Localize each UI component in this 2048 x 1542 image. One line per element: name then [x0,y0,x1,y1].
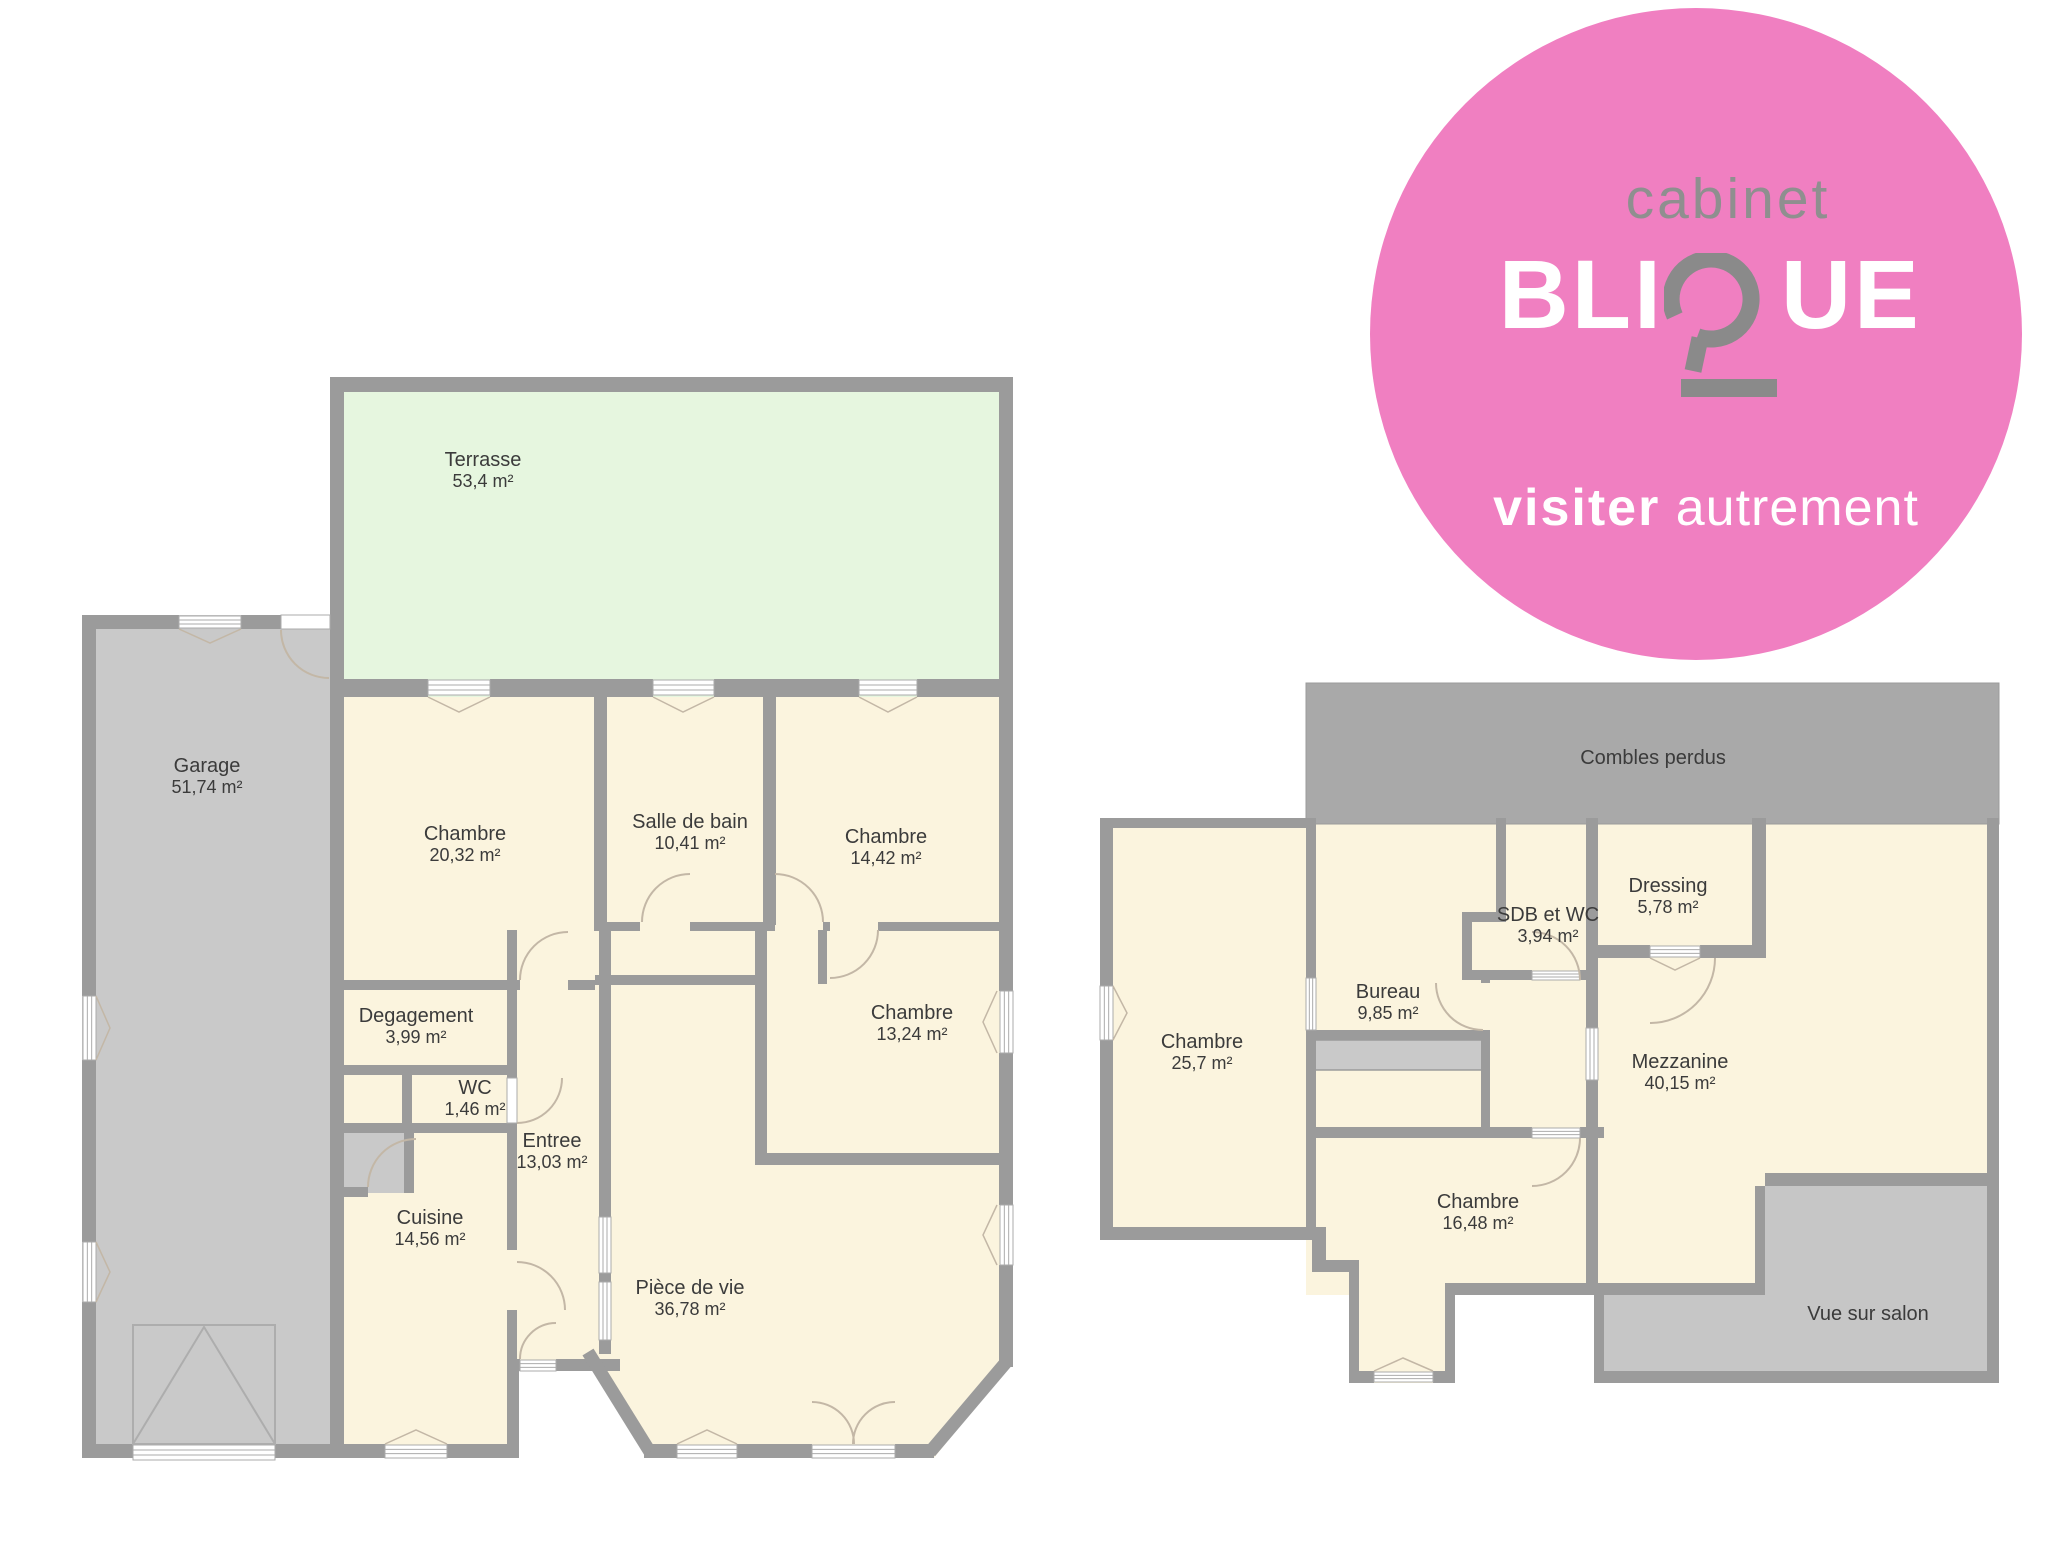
wall-segment [1349,1371,1374,1383]
wall-segment [1481,1030,1490,1130]
wall-segment [275,1444,330,1458]
wall-segment [999,1265,1013,1367]
wall-segment [1462,970,1532,980]
window [599,1217,611,1273]
room-area-chambre-2: 14,42 m² [850,848,921,868]
wall-segment [330,1444,385,1458]
room-area-wc: 1,46 m² [444,1099,505,1119]
wall-segment [330,629,344,1458]
wall-segment [330,377,1013,392]
room-label-wc: WC [458,1077,491,1099]
room-area-salle-de-bain: 10,41 m² [654,833,725,853]
wall-segment [1445,1283,1455,1383]
room-label-piece-de-vie: Pièce de vie [636,1277,745,1299]
wall-segment [823,922,830,931]
wall-segment [1100,818,1312,828]
room-label-entree: Entree [523,1130,582,1152]
wall-segment [1100,1227,1326,1240]
wall-segment [1306,818,1316,978]
room-label-garage: Garage [174,755,241,777]
room-label-vue-sur-salon: Vue sur salon [1807,1303,1929,1325]
room-label-chambre-1: Chambre [424,823,506,845]
wall-segment [1445,1283,1765,1295]
window [1650,946,1700,957]
window [507,1078,517,1123]
wall-segment [755,1153,1013,1165]
wall-segment [818,930,827,984]
wall-segment [507,930,517,1078]
wall-segment [82,1302,96,1458]
window [812,1445,895,1458]
window [1532,971,1580,980]
wall-segment [507,1310,517,1444]
room-label-mezzanine: Mezzanine [1632,1051,1729,1073]
wall-segment [404,1133,414,1193]
wall-segment [1586,1080,1598,1295]
house-fill [330,1353,519,1458]
room-area-cuisine: 14,56 m² [394,1229,465,1249]
wall-segment [1594,1295,1604,1383]
room-label-bureau: Bureau [1356,981,1421,1003]
logo-q-icon [1664,253,1781,388]
window [653,680,714,695]
window [1100,986,1113,1040]
wall-segment [402,1075,412,1123]
wall-segment [595,975,755,985]
wall-segment [490,679,653,697]
wall-segment [599,930,611,1217]
room-label-combles: Combles perdus [1580,747,1726,769]
room-label-chambre-3: Chambre [871,1002,953,1024]
logo-tagline: visiter autrement [1370,478,2022,538]
wall-segment [1100,1040,1113,1240]
wall-segment [999,1053,1013,1205]
room-label-dressing: Dressing [1629,875,1708,897]
wall-segment [1100,824,1113,986]
logo-tagline-bold: visiter [1493,479,1660,537]
wall-segment [330,1123,517,1133]
floorplan-page: Terrasse 53,4 m² Garage 51,74 m² Chambre… [0,0,2048,1542]
wall-segment [917,679,1013,697]
house-fill [1349,1260,1455,1383]
room-label-chambre-2: Chambre [845,826,927,848]
room-area-chambre-5: 16,48 m² [1442,1213,1513,1233]
room-area-sdb-wc: 3,94 m² [1517,926,1578,946]
room-area-entree: 13,03 m² [516,1152,587,1172]
wall-segment [330,1187,368,1197]
window [428,680,490,695]
room-area-degagement: 3,99 m² [385,1027,446,1047]
room-area-piece-de-vie: 36,78 m² [654,1299,725,1319]
wall-segment [82,1060,96,1242]
wall-segment [82,615,96,996]
wall-segment [690,922,775,931]
room-area-garage: 51,74 m² [171,777,242,797]
wall-segment [594,697,607,930]
window [281,615,330,629]
wall-segment [568,980,595,990]
window [520,1360,556,1371]
wall-segment [737,1444,812,1458]
wall-segment [1598,945,1650,958]
wall-segment [330,679,428,697]
window [1000,991,1013,1053]
wall-segment [878,922,1013,931]
logo-brand-start: BLI [1370,246,1664,343]
room-label-salle-de-bain: Salle de bain [632,811,748,833]
wall-segment [1765,1173,1999,1186]
wall-segment [330,1065,517,1075]
wall-segment [1349,1260,1359,1383]
wall-segment [755,930,767,1160]
entry-recess [519,1371,592,1458]
vue-sur-salon-fill [1594,1295,1765,1383]
window [677,1445,737,1458]
window [1374,1372,1433,1382]
room-area-chambre-1: 20,32 m² [429,845,500,865]
wall-segment [599,1273,611,1282]
agency-logo: cabinet BLI UE visiter autrement [1370,8,2022,660]
room-area-chambre-4: 25,7 m² [1171,1053,1232,1073]
wall-segment [330,980,520,990]
house-fill [1598,1186,1765,1295]
room-label-cuisine: Cuisine [397,1207,464,1229]
window [1000,1205,1013,1265]
wall-segment [507,1123,517,1250]
house-fill [1100,818,1312,1240]
wall-segment [999,697,1013,991]
window [599,1282,611,1340]
room-area-chambre-3: 13,24 m² [876,1024,947,1044]
wall-segment [599,1340,611,1354]
window [859,680,917,695]
wall-segment [82,1444,133,1458]
room-area-mezzanine: 40,15 m² [1644,1073,1715,1093]
room-area-bureau: 9,85 m² [1357,1003,1418,1023]
terrace-fill [330,377,1013,697]
logo-tagline-light: autrement [1676,479,1919,537]
logo-cabinet-text: cabinet [1370,166,2022,232]
room-label-chambre-4: Chambre [1161,1031,1243,1053]
wall-segment [1312,1030,1483,1040]
wall-segment [1481,970,1490,983]
room-label-degagement: Degagement [359,1005,474,1027]
room-label-sdb-wc: SDB et WC [1497,904,1599,926]
stairs-fill [1312,1040,1483,1070]
window [83,996,96,1060]
wall-segment [1594,1371,1999,1383]
window [1586,1028,1598,1080]
wall-segment [1312,1127,1532,1138]
room-label-terrasse: Terrasse [445,449,522,471]
window [83,1242,96,1302]
wall-segment [1987,818,1999,1383]
window [1306,978,1316,1030]
wall-segment [714,679,859,697]
vue-sur-salon-fill [1755,1186,1999,1383]
window [133,1445,275,1460]
room-area-terrasse: 53,4 m² [452,471,513,491]
wall-segment [1755,1186,1765,1295]
wall-segment [241,615,281,629]
wall-segment [999,377,1013,697]
wall-segment [447,1444,519,1458]
wall-segment [1752,818,1766,958]
room-area-dressing: 5,78 m² [1637,897,1698,917]
wall-segment [763,697,776,925]
window [1532,1128,1580,1138]
wall-segment [594,922,640,931]
logo-underline-bar [1681,379,1777,397]
wall-segment [82,615,179,629]
room-label-chambre-5: Chambre [1437,1191,1519,1213]
window [179,616,241,628]
logo-brand-end: UE [1781,246,1922,343]
window [385,1445,447,1458]
